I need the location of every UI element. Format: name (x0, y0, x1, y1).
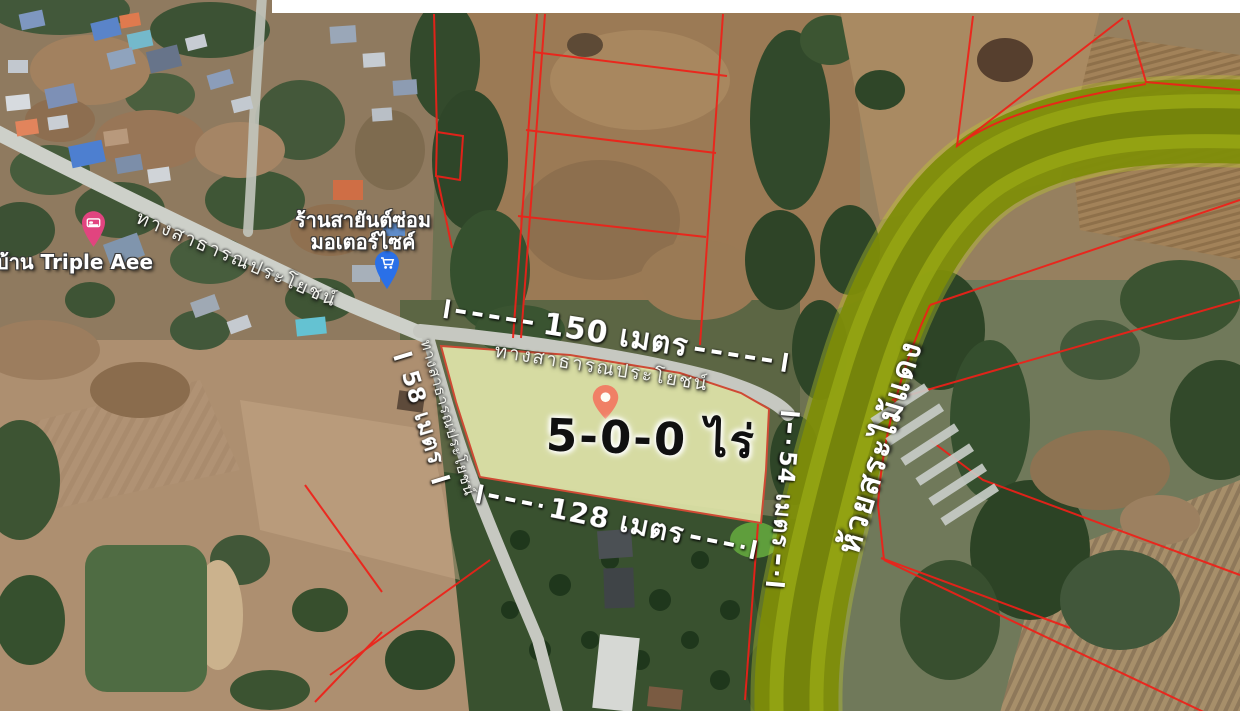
dimension-dash (775, 554, 781, 575)
plot-area-label: 5-0-0 ไร่ (545, 398, 757, 477)
dimension-dash (404, 364, 408, 365)
shop-name-line2: มอเตอร์ไซค์ (293, 231, 433, 253)
shopping-cart-pin-icon[interactable] (375, 251, 399, 293)
dimension-dash (456, 308, 537, 325)
shop-name-line1: ร้านสายันต์ซ่อม (293, 209, 433, 231)
lodging-name-label: บ้าน Triple Aee (0, 246, 153, 278)
dimension-tick (781, 411, 800, 417)
dimension-dash (690, 534, 744, 549)
dimension-dash (488, 493, 542, 508)
bed-pin-icon[interactable] (82, 211, 105, 251)
dimension-dash (437, 470, 441, 471)
dimension-dash (786, 423, 792, 444)
canvas-white-margin-bottom (0, 711, 1240, 720)
shop-name-label: ร้านสายันต์ซ่อม มอเตอร์ไซค์ (293, 209, 433, 254)
dimension-dash (695, 346, 776, 363)
canvas-white-margin-top (272, 0, 1240, 13)
land-listing-map: ทางสาธารณประโยชน์ ทางสาธารณประโยชน์ ทางส… (0, 0, 1240, 720)
